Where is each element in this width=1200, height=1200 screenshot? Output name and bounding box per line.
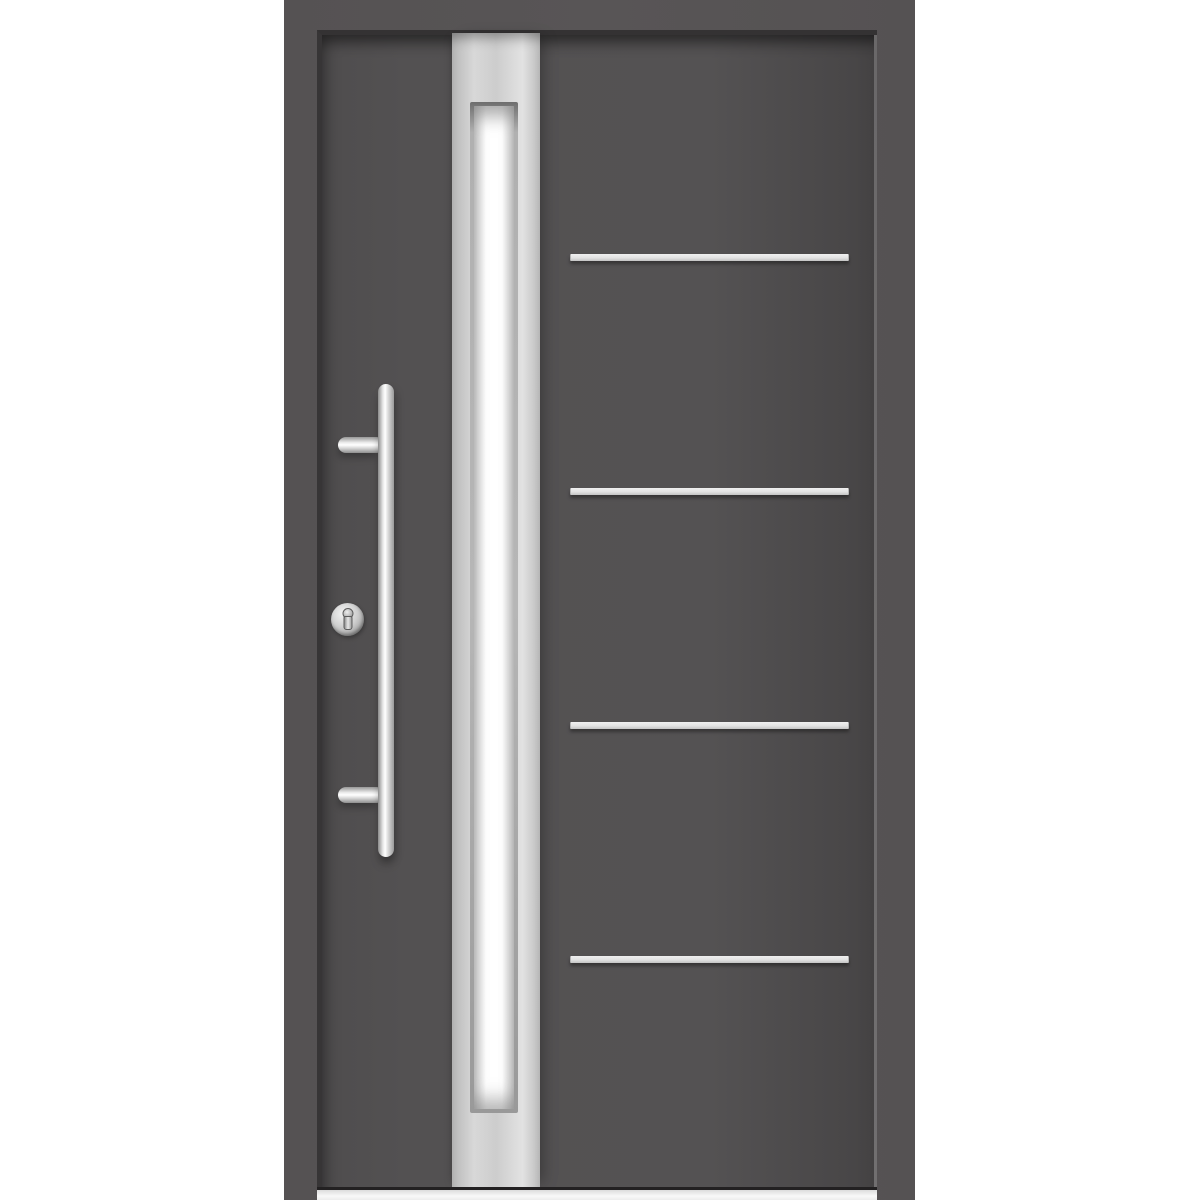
door-frame (284, 0, 915, 1200)
steel-glazing-strip (452, 33, 540, 1187)
door-leaf-edge-highlight (874, 35, 877, 1187)
trim-stripe-3 (570, 722, 849, 729)
glass-recess-bevel (470, 102, 518, 1113)
trim-stripe-2 (570, 488, 849, 495)
lock-keyhole-body (343, 616, 352, 630)
pull-handle-bar (378, 384, 394, 857)
lock-cylinder (331, 603, 364, 636)
frosted-glass-pane (474, 106, 514, 1109)
door-leaf (317, 30, 877, 1187)
handle-mount-post-upper (338, 437, 380, 453)
trim-stripe-4 (570, 956, 849, 963)
threshold (317, 1187, 877, 1200)
handle-mount-post-lower (338, 787, 380, 803)
trim-stripe-1 (570, 254, 849, 261)
product-image-canvas (0, 0, 1200, 1200)
